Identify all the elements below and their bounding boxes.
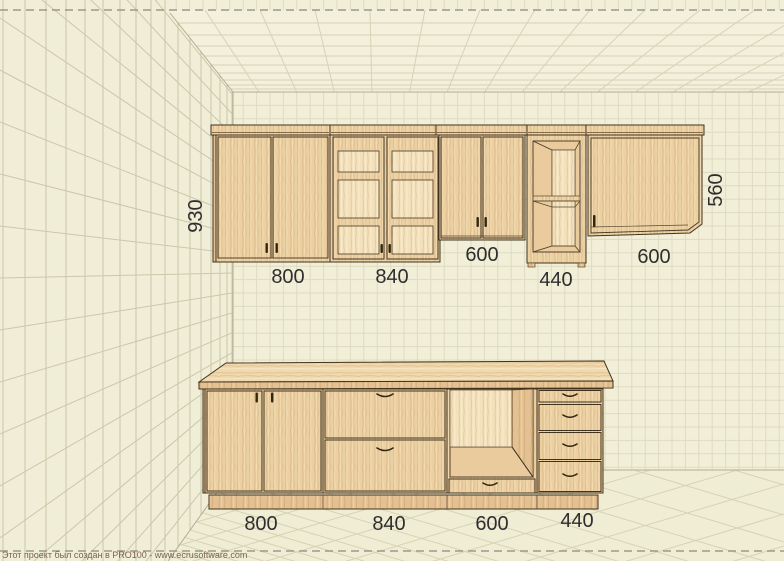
cornice	[211, 125, 704, 135]
dim-base-width-440: 440	[560, 510, 593, 532]
dim-base-width-600: 600	[475, 513, 508, 535]
dim-base-width-800: 800	[244, 513, 277, 535]
door-handle	[256, 393, 258, 403]
upper-cabinet-600-right[interactable]	[588, 135, 702, 236]
upper-open-shelf-440[interactable]	[527, 135, 586, 267]
watermark-text: Этот проект был создан в PRO100 - www.ec…	[2, 550, 247, 560]
base-cabinet-row	[199, 361, 613, 509]
door-handle	[266, 243, 268, 253]
shelf	[533, 196, 580, 201]
door-handle	[271, 393, 273, 403]
dim-upper-height-right: 560	[705, 173, 727, 206]
plinth	[209, 495, 598, 509]
dim-upper-width-440: 440	[539, 269, 572, 291]
countertop[interactable]	[199, 361, 613, 389]
upper-cabinet-600[interactable]	[439, 135, 525, 240]
dim-upper-width-840: 840	[375, 266, 408, 288]
door-handle	[389, 244, 391, 253]
base-oven-niche-600[interactable]	[447, 389, 537, 493]
dim-base-width-840: 840	[372, 513, 405, 535]
upper-cabinet-840[interactable]	[330, 135, 440, 262]
dim-upper-width-600-right: 600	[637, 246, 670, 268]
door-handle	[477, 217, 479, 227]
door-handle	[276, 243, 278, 253]
dim-upper-height-left: 930	[185, 199, 207, 232]
dim-upper-width-800: 800	[271, 266, 304, 288]
base-drawers-840[interactable]	[323, 389, 447, 493]
pro100-render-viewport: 930 560 800 840 600 440 600 800 840 600 …	[0, 0, 784, 561]
door-handle	[381, 244, 383, 253]
base-drawers-440[interactable]	[537, 389, 603, 493]
upper-cabinet-800[interactable]	[213, 135, 330, 262]
kitchen-perspective-scene: 930 560 800 840 600 440 600 800 840 600 …	[0, 0, 784, 561]
base-cabinet-800[interactable]	[203, 389, 323, 493]
door-handle	[485, 217, 487, 227]
door-handle	[593, 215, 596, 227]
dim-upper-width-600: 600	[465, 244, 498, 266]
